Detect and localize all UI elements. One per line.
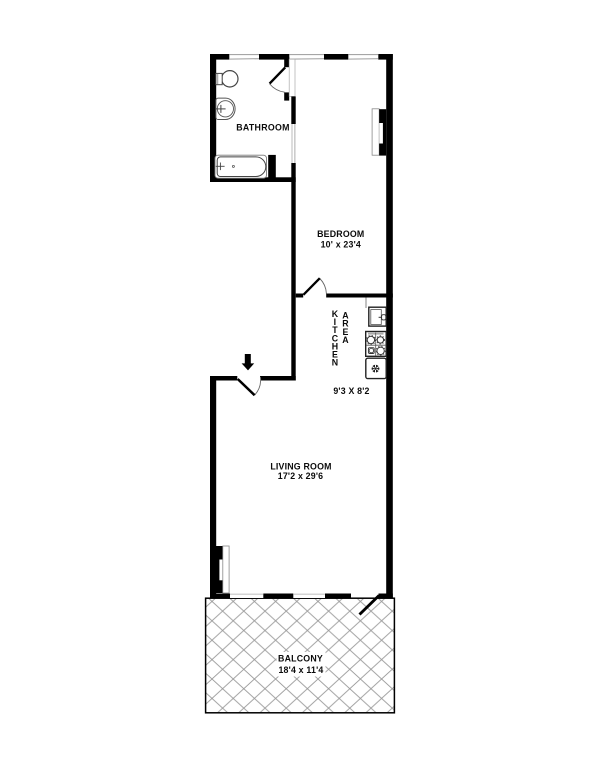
svg-text:BALCONY: BALCONY bbox=[278, 654, 323, 664]
svg-text:17'2 x 29'6: 17'2 x 29'6 bbox=[278, 471, 324, 481]
svg-text:LIVING ROOM: LIVING ROOM bbox=[270, 461, 331, 471]
svg-text:18'4 x 11'4: 18'4 x 11'4 bbox=[278, 665, 323, 675]
svg-text:N: N bbox=[332, 358, 338, 368]
svg-text:9'3 X 8'2: 9'3 X 8'2 bbox=[333, 386, 369, 396]
svg-text:BEDROOM: BEDROOM bbox=[317, 229, 364, 239]
svg-text:BATHROOM: BATHROOM bbox=[236, 123, 290, 133]
svg-text:A: A bbox=[342, 335, 349, 345]
svg-text:10' x 23'4: 10' x 23'4 bbox=[321, 240, 361, 250]
